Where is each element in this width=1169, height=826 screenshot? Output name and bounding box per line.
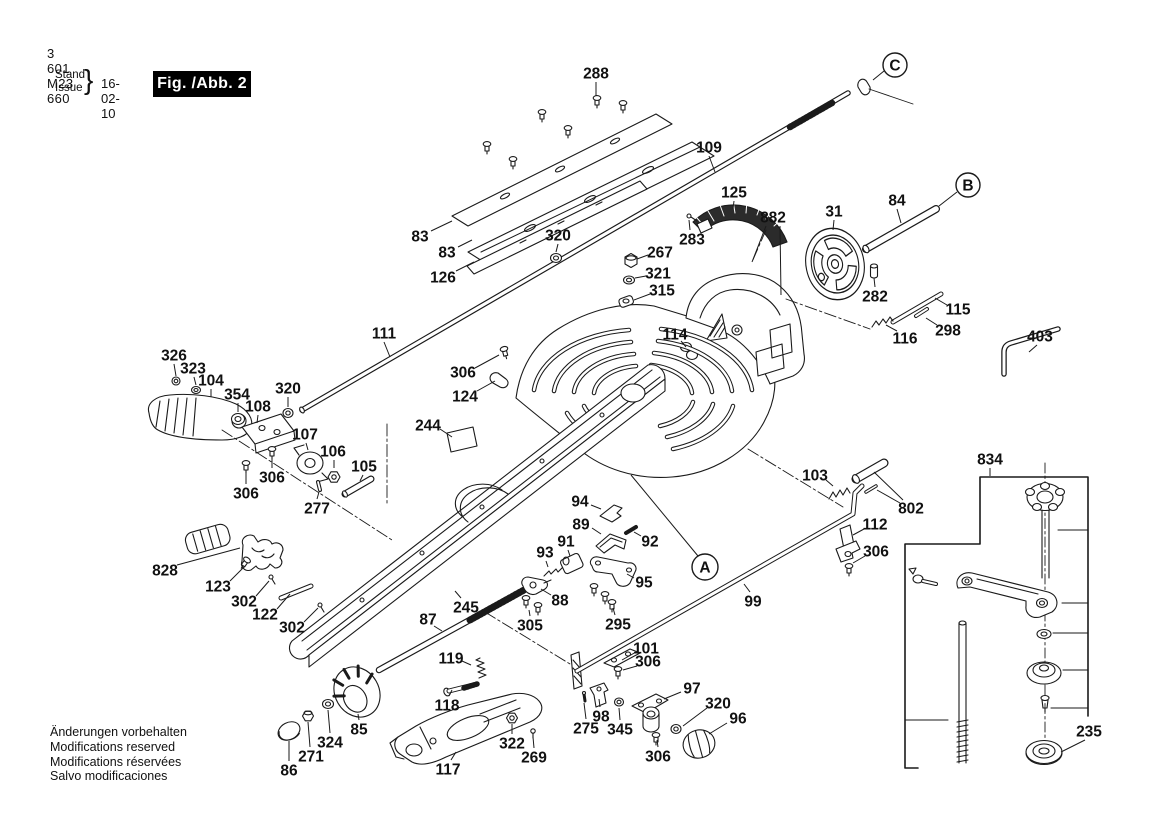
- leader-line: [477, 381, 495, 391]
- leader-line: [431, 221, 452, 231]
- part-label: 306: [233, 486, 259, 503]
- leader-line: [475, 355, 499, 368]
- notice-line: Änderungen vorbehalten: [50, 725, 187, 740]
- leader-line: [458, 240, 472, 247]
- leader-line: [317, 492, 319, 499]
- part-label: 119: [438, 651, 463, 668]
- part-label: 288: [583, 66, 609, 83]
- part-label: 117: [435, 762, 460, 779]
- view-marker-leader: [873, 71, 884, 80]
- diagram-artwork: [148, 79, 1088, 768]
- part-label: 295: [605, 617, 631, 634]
- leader-line: [556, 244, 558, 252]
- figure-label: Fig. /Abb. 2: [153, 71, 251, 97]
- part-label: 106: [320, 444, 346, 461]
- view-marker-letter: A: [699, 560, 710, 577]
- leader-line: [306, 443, 308, 450]
- view-marker-letter: B: [962, 178, 973, 195]
- leader-line: [328, 710, 330, 733]
- part-label: 116: [892, 331, 917, 348]
- leader-line: [256, 581, 269, 596]
- part-label: 267: [647, 245, 673, 262]
- part-label: 320: [275, 381, 301, 398]
- part-label: 282: [862, 289, 888, 306]
- part-label: 320: [545, 228, 571, 245]
- leader-line: [592, 528, 601, 534]
- part-label: 94: [571, 494, 589, 511]
- clamp-inset: [905, 463, 1088, 768]
- leader-line: [752, 226, 766, 262]
- part-label: 95: [635, 575, 653, 592]
- leader-line: [384, 342, 390, 357]
- part-label: 306: [863, 544, 889, 561]
- part-label: 31: [825, 204, 843, 221]
- part-label: 345: [607, 722, 633, 739]
- part-label: 83: [411, 229, 429, 246]
- leader-line: [709, 723, 727, 734]
- leader-line: [194, 377, 196, 385]
- view-marker-leader: [939, 192, 957, 206]
- leader-line: [897, 209, 901, 223]
- part-label: 103: [802, 468, 828, 485]
- leader-line: [683, 708, 707, 726]
- part-label: 802: [898, 501, 924, 518]
- part-label: 235: [1076, 724, 1102, 741]
- part-label: 85: [350, 722, 368, 739]
- part-label: 86: [280, 763, 298, 780]
- part-label: 403: [1027, 329, 1053, 346]
- leader-line: [634, 532, 641, 536]
- leader-line: [584, 703, 586, 719]
- shaft-and-pins: [862, 209, 1058, 374]
- part-label: 277: [304, 501, 330, 518]
- part-label: 105: [351, 459, 377, 476]
- part-label: 107: [292, 427, 318, 444]
- part-label: 244: [415, 418, 441, 435]
- leader-line: [529, 610, 530, 616]
- leader-line: [664, 692, 681, 699]
- leader-line: [619, 708, 620, 720]
- part-label: 306: [450, 365, 476, 382]
- part-label: 122: [252, 607, 278, 624]
- part-label: 275: [573, 721, 599, 738]
- part-label: 298: [935, 323, 961, 340]
- leader-line: [568, 550, 570, 556]
- view-marker-letter: C: [889, 58, 900, 75]
- leader-line: [591, 505, 601, 509]
- leader-line: [541, 589, 551, 595]
- part-label: 828: [152, 563, 178, 580]
- part-label: 93: [536, 545, 554, 562]
- part-label: 321: [645, 266, 671, 283]
- part-label: 305: [517, 618, 543, 635]
- legal-notices: Änderungen vorbehalten Modifications res…: [50, 725, 187, 784]
- leader-line: [304, 608, 318, 622]
- leader-line: [1061, 740, 1085, 752]
- part-label: 84: [888, 193, 906, 210]
- part-label: 108: [245, 399, 271, 416]
- part-label: 87: [419, 612, 436, 629]
- leader-line: [546, 561, 548, 567]
- leader-line: [533, 737, 534, 748]
- leader-line: [174, 364, 176, 376]
- part-label: 123: [205, 579, 231, 596]
- part-label: 83: [438, 245, 456, 262]
- part-label: 320: [705, 696, 731, 713]
- part-label: 92: [641, 534, 658, 551]
- part-label: 306: [635, 654, 661, 671]
- part-label: 109: [696, 140, 722, 157]
- leader-line: [308, 722, 310, 747]
- leader-line: [1029, 345, 1037, 352]
- notice-line: Salvo modificaciones: [50, 769, 187, 784]
- part-label: 302: [279, 620, 305, 637]
- exploded-view-drawing: 2881091258823184283320838312626732131511…: [0, 0, 1169, 826]
- leader-line: [634, 294, 650, 300]
- leader-line: [455, 591, 461, 598]
- part-label: 118: [434, 698, 459, 715]
- notice-line: Modifications reserved: [50, 740, 187, 755]
- stand-issue-label: Stand Issue: [55, 69, 85, 95]
- leader-line: [230, 566, 245, 581]
- leader-line: [689, 220, 690, 230]
- parts-diagram-page: 2881091258823184283320838312626732131511…: [0, 0, 1169, 826]
- leader-line: [877, 490, 900, 503]
- part-label: 114: [662, 327, 687, 344]
- part-label: 91: [557, 534, 575, 551]
- part-label: 834: [977, 452, 1003, 469]
- part-label: 269: [521, 750, 547, 767]
- issue-date: 16-02-10: [101, 76, 120, 121]
- part-label: 126: [430, 270, 456, 287]
- part-label: 324: [317, 735, 343, 752]
- part-label: 124: [452, 389, 478, 406]
- part-label: 882: [760, 210, 786, 227]
- leader-line: [744, 584, 750, 592]
- leader-line: [874, 472, 903, 500]
- brace-glyph: }: [84, 64, 93, 96]
- part-label: 125: [721, 185, 747, 202]
- part-label: 112: [862, 517, 887, 534]
- part-label: 306: [259, 470, 285, 487]
- part-label: 96: [729, 711, 747, 728]
- notice-line: Modifications réservées: [50, 755, 187, 770]
- part-label: 97: [683, 681, 700, 698]
- part-label: 89: [572, 517, 590, 534]
- handwheel: [799, 223, 871, 305]
- part-label: 99: [744, 594, 762, 611]
- part-label: 111: [372, 326, 397, 343]
- part-label: 104: [198, 373, 224, 390]
- part-label: 306: [645, 749, 671, 766]
- part-label: 115: [945, 302, 970, 319]
- part-label: 315: [649, 283, 675, 300]
- part-label: 283: [679, 232, 705, 249]
- leader-line: [874, 278, 875, 287]
- part-label: 245: [453, 600, 479, 617]
- part-label: 88: [551, 593, 569, 610]
